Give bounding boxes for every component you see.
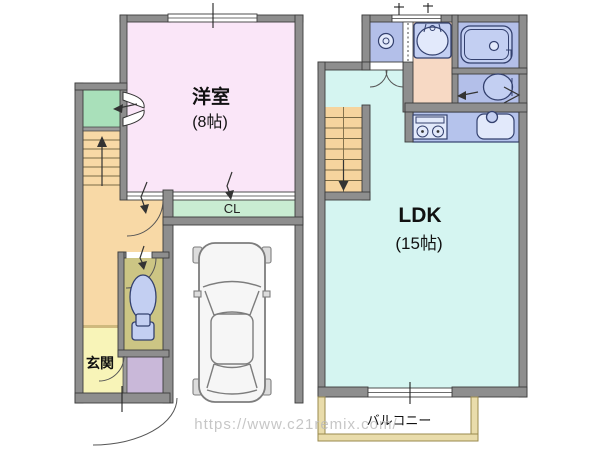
car-icon [193,243,271,402]
bathtub-icon [461,26,512,63]
left-unit [75,3,303,445]
western-room-label: 洋室 [192,85,230,108]
accordion-door-icon [403,22,413,62]
ldk-label: LDK [398,204,441,227]
floor-plan: 洋室 (8帖) LDK (15帖) CL 玄関 バルコニー https://ww… [0,0,600,457]
washbasin-icon [414,23,451,58]
ldk-size: (15帖) [395,234,442,253]
toilet-icon [130,275,156,340]
sliding-door-strips [127,192,295,200]
bath-window [392,3,441,22]
washing-machine-pan-icon [379,34,394,49]
storage-floor [127,357,163,393]
stove-icon [413,115,447,139]
kitchen-sink-icon [477,112,514,140]
floor-plan-drawing: 洋室 (8帖) LDK (15帖) CL 玄関 バルコニー https://ww… [0,0,600,457]
cl-label: CL [224,201,241,216]
western-room-size: (8帖) [192,113,228,131]
entrance-label: 玄関 [86,355,114,371]
watermark: https://www.c21remix.com/ [194,416,397,433]
